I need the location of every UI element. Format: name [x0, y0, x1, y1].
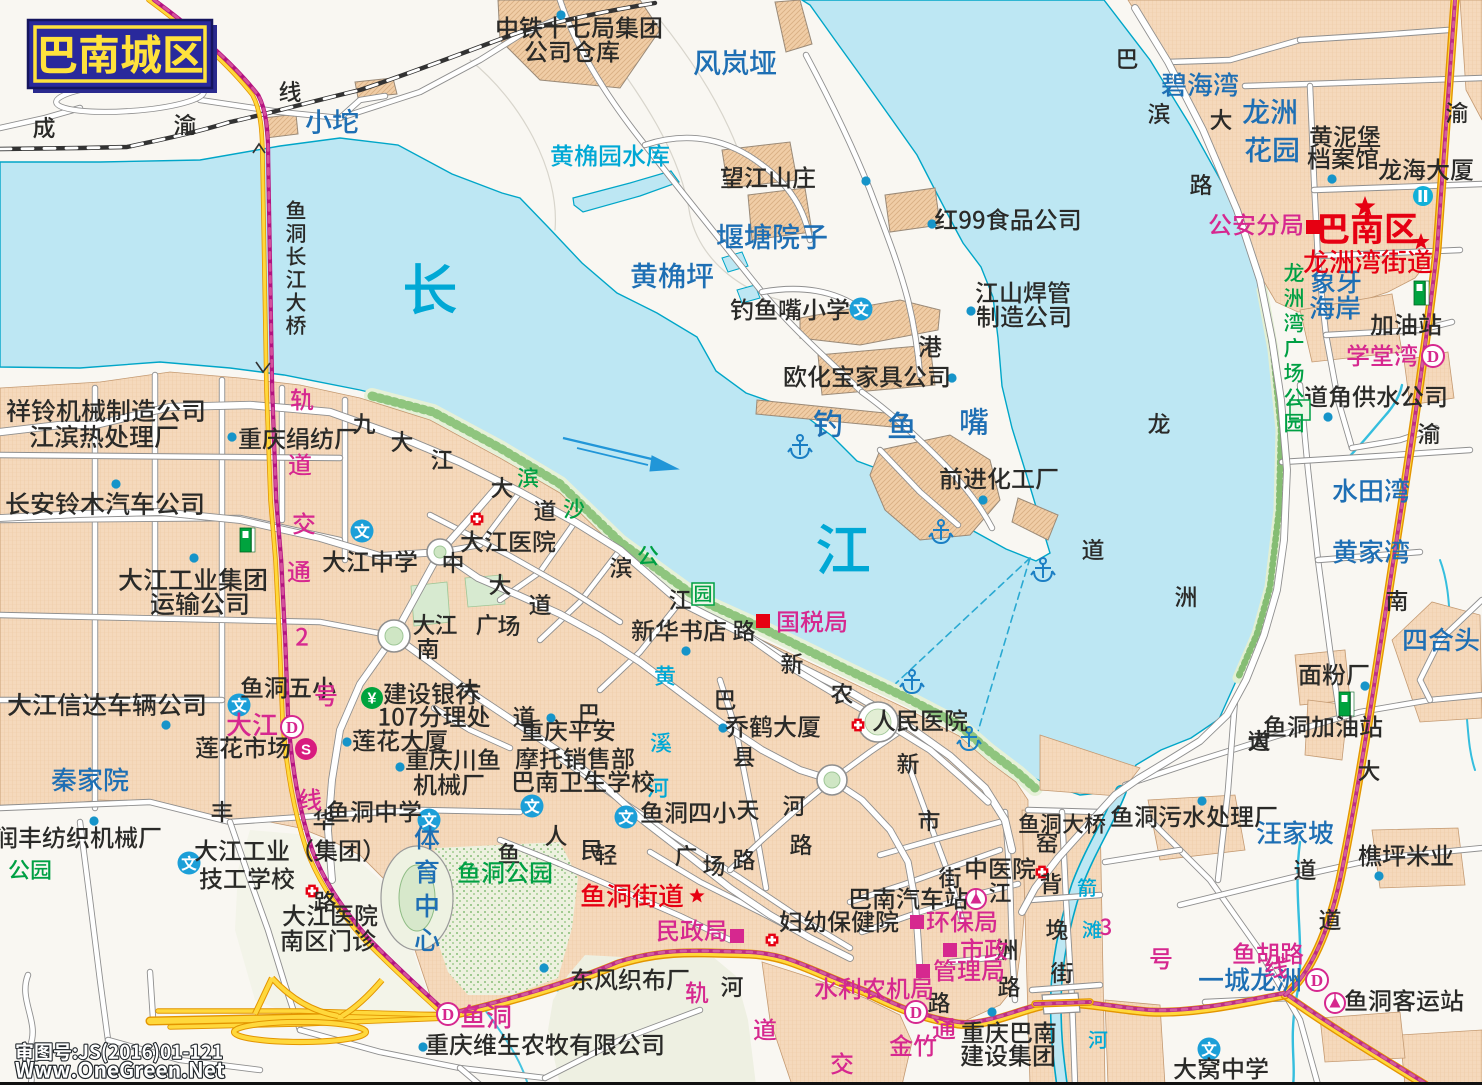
svg-text:D: D [442, 1005, 454, 1024]
svg-text:S: S [301, 742, 311, 759]
svg-text:D: D [286, 718, 298, 737]
svg-text:D: D [1427, 347, 1439, 366]
svg-text:D: D [1311, 971, 1323, 990]
svg-text:D: D [910, 1003, 922, 1022]
svg-text:¥: ¥ [368, 691, 377, 708]
